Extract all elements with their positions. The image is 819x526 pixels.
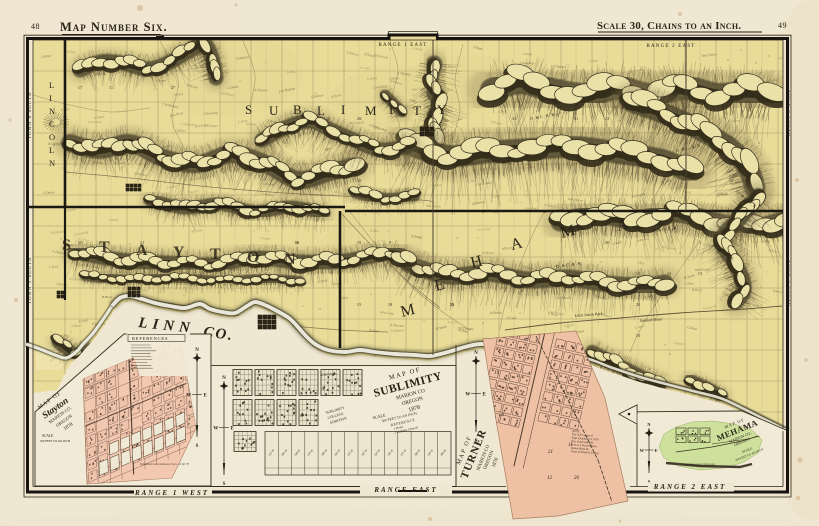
svg-text:12: 12 [547, 476, 553, 481]
svg-text:N: N [49, 158, 55, 168]
svg-text:11: 11 [109, 85, 113, 90]
svg-text:S.Hobson: S.Hobson [391, 328, 405, 333]
svg-text:N: N [49, 106, 55, 116]
svg-text:A.Wolf: A.Wolf [108, 218, 119, 222]
svg-text:Williams: Williams [490, 311, 503, 315]
svg-text:L: L [49, 145, 54, 155]
svg-text:TOWN 8 SOUTH: TOWN 8 SOUTH [27, 91, 32, 138]
svg-text:L.Stout: L.Stout [447, 320, 459, 325]
svg-text:Published from Anderson Surv.: Published from Anderson Surv. of Jul 78 [140, 462, 189, 466]
svg-text:U: U [269, 103, 279, 118]
svg-text:RANGE EAST: RANGE EAST [373, 486, 437, 494]
svg-text:B.Hunt: B.Hunt [102, 295, 113, 299]
svg-text:RANGE 1 EAST: RANGE 1 EAST [378, 43, 427, 48]
svg-text:L: L [49, 80, 54, 90]
svg-text:SCALE: SCALE [42, 434, 54, 438]
svg-text:W.Brown: W.Brown [482, 251, 495, 255]
svg-text:W: W [213, 427, 218, 432]
svg-text:I: I [341, 102, 345, 117]
svg-text:17: 17 [78, 85, 83, 90]
svg-text:W.Cornell: W.Cornell [350, 121, 364, 125]
svg-text:15: 15 [357, 302, 362, 307]
svg-text:19: 19 [494, 371, 500, 376]
svg-text:S: S [62, 237, 71, 254]
svg-text:J.Miller: J.Miller [389, 76, 401, 81]
svg-text:A: A [136, 242, 148, 259]
svg-text:W: W [186, 394, 191, 399]
svg-text:27: 27 [171, 85, 176, 90]
svg-text:Map Number Six.: Map Number Six. [60, 20, 168, 34]
svg-text:1: 1 [699, 240, 701, 245]
svg-text:S.Jones: S.Jones [360, 66, 371, 70]
svg-text:49: 49 [778, 21, 787, 30]
svg-text:REFERENCES: REFERENCES [132, 336, 168, 341]
svg-text:SANTIAM WAGON ROAD: SANTIAM WAGON ROAD [685, 464, 715, 467]
svg-text:10: 10 [636, 333, 641, 338]
svg-text:M: M [365, 103, 377, 118]
svg-text:L.Abst: L.Abst [369, 229, 380, 233]
svg-text:S: S [196, 444, 199, 449]
svg-text:T: T [413, 103, 421, 118]
svg-text:A.Davis: A.Davis [70, 323, 83, 328]
svg-text:S: S [245, 102, 252, 117]
svg-text:N: N [284, 251, 296, 268]
svg-text:L.Abst: L.Abst [588, 59, 599, 63]
svg-text:I: I [49, 93, 52, 103]
svg-text:13: 13 [698, 271, 703, 276]
svg-text:36: 36 [295, 240, 300, 245]
svg-text:Y: Y [173, 244, 185, 261]
svg-text:T: T [210, 246, 221, 263]
svg-text:Y: Y [437, 102, 447, 117]
svg-text:N: N [195, 348, 199, 353]
svg-text:20: 20 [357, 116, 362, 121]
svg-text:B: B [293, 102, 302, 117]
svg-text:W: W [465, 393, 470, 398]
svg-text:20: 20 [636, 302, 641, 307]
svg-text:O: O [49, 132, 55, 142]
svg-text:J.Kaiser: J.Kaiser [56, 282, 68, 287]
svg-text:A.Thomas: A.Thomas [253, 88, 268, 93]
svg-text:N: N [222, 376, 226, 381]
svg-text:TOWN 9 SOUTH: TOWN 9 SOUTH [27, 256, 32, 303]
svg-text:N: N [474, 351, 478, 356]
svg-text:C: C [49, 119, 55, 129]
svg-text:I: I [389, 102, 393, 117]
svg-text:26: 26 [574, 476, 580, 481]
svg-text:TOWN 8 SOUTH: TOWN 8 SOUTH [786, 90, 791, 137]
svg-text:L.Stout: L.Stout [286, 70, 298, 74]
svg-text:20: 20 [499, 413, 505, 418]
svg-text:L: L [317, 103, 325, 118]
svg-text:30: 30 [605, 240, 610, 245]
svg-text:B.Hunt: B.Hunt [692, 288, 703, 292]
svg-text:T: T [99, 239, 110, 256]
svg-text:18: 18 [388, 302, 393, 307]
svg-text:T.Hunt: T.Hunt [685, 281, 696, 286]
svg-text:E.Tate: E.Tate [66, 50, 76, 54]
svg-text:C.Decke: C.Decke [43, 190, 55, 195]
svg-text:RANGE 2 EAST: RANGE 2 EAST [646, 44, 695, 49]
svg-text:J.Miller: J.Miller [175, 129, 187, 133]
svg-text:RANGE 2 EAST: RANGE 2 EAST [653, 483, 727, 491]
svg-text:RANGE 1 WEST: RANGE 1 WEST [134, 489, 209, 497]
svg-text:21: 21 [548, 450, 553, 455]
svg-text:Scale 30, Chains to an Inch.: Scale 30, Chains to an Inch. [597, 20, 741, 32]
svg-text:J.Smith: J.Smith [522, 52, 533, 56]
svg-text:Geo.Gray: Geo.Gray [88, 120, 102, 124]
svg-text:48: 48 [31, 22, 40, 31]
svg-text:500 FEET TO AN INCH: 500 FEET TO AN INCH [40, 439, 71, 443]
svg-text:O: O [247, 249, 259, 266]
svg-text:E: E [655, 448, 658, 453]
svg-text:TOWN 9 SOUTH: TOWN 9 SOUTH [786, 260, 791, 307]
svg-text:Wm.Pierce: Wm.Pierce [426, 204, 441, 209]
svg-text:L.Stout: L.Stout [48, 264, 60, 269]
svg-text:19: 19 [357, 240, 362, 245]
svg-text:G.Downing: G.Downing [181, 122, 197, 127]
svg-text:J.Frank: J.Frank [506, 316, 517, 320]
svg-text:W: W [640, 448, 645, 453]
